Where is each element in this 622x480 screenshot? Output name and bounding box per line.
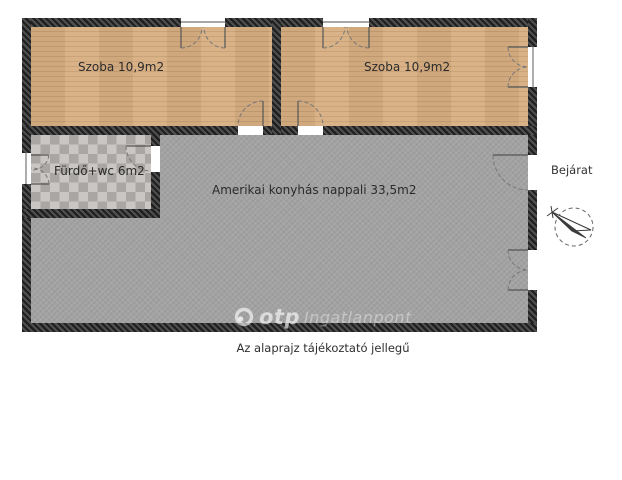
- wall-left-b: [22, 184, 31, 332]
- living-room-label: Amerikai konyhás nappali 33,5m2: [212, 183, 416, 197]
- room1-floor: [31, 27, 272, 126]
- compass-icon: [547, 206, 593, 246]
- entrance-label: Bejárat: [551, 163, 593, 177]
- wall-mid-a: [22, 126, 238, 135]
- wall-room-divider: [272, 18, 281, 135]
- room2-floor: [281, 27, 528, 126]
- wall-bath-bottom: [22, 209, 160, 218]
- plan-disclaimer: Az alaprajz tájékoztató jellegű: [223, 341, 423, 355]
- wall-top-a: [22, 18, 181, 27]
- room2-label: Szoba 10,9m2: [364, 60, 450, 74]
- wall-top-c: [369, 18, 537, 27]
- wall-right-a: [528, 18, 537, 47]
- bathroom-label: Fürdő+wc 6m2: [54, 164, 145, 178]
- wall-bottom: [22, 323, 537, 332]
- wall-bath-right-a: [151, 135, 160, 146]
- floorplan-canvas: Szoba 10,9m2 Szoba 10,9m2 Fürdő+wc 6m2 A…: [0, 0, 622, 480]
- bathroom-door-threshold: [151, 146, 160, 172]
- room1-label: Szoba 10,9m2: [78, 60, 164, 74]
- wall-right-c: [528, 190, 537, 250]
- wall-mid-c: [323, 126, 537, 135]
- wall-right-b: [528, 87, 537, 155]
